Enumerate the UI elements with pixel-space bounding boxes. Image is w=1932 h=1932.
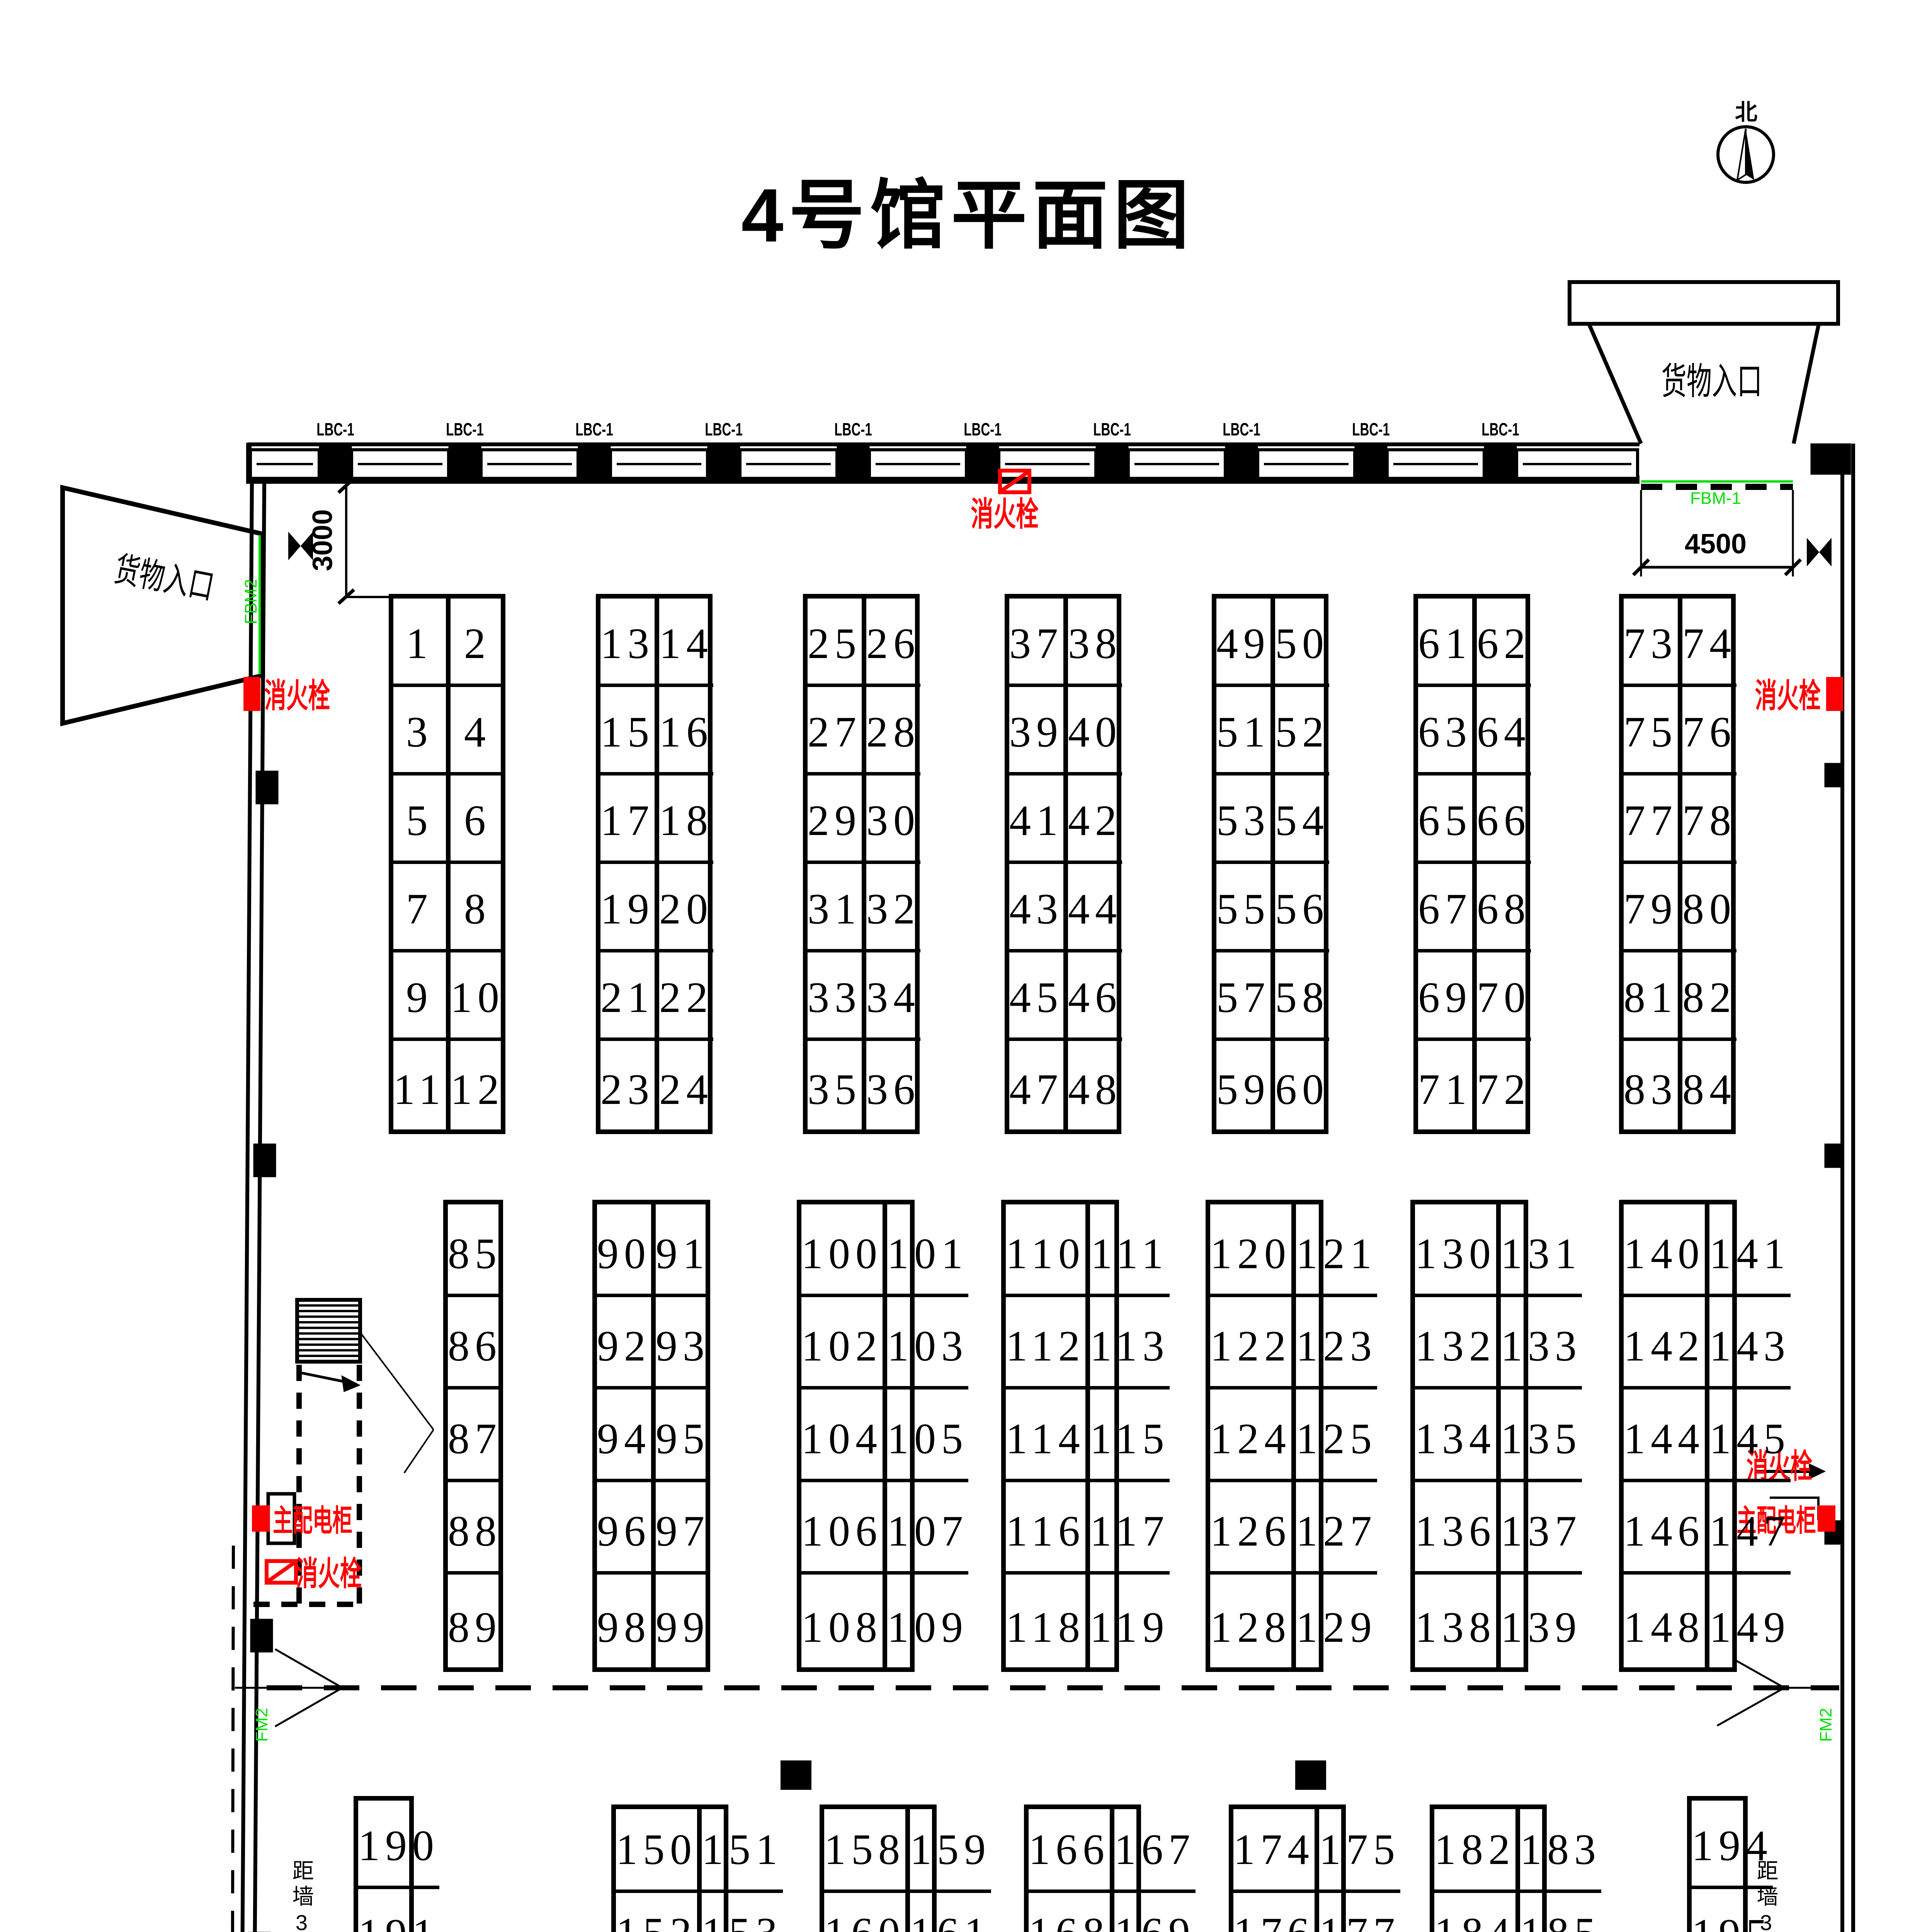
booth-number: 49 xyxy=(1216,619,1270,669)
booth-number: 52 xyxy=(1275,707,1329,757)
booth-number: 40 xyxy=(1068,707,1122,757)
booth-number: 135 xyxy=(1501,1414,1582,1464)
booth-number: 83 xyxy=(1624,1065,1678,1115)
booth-number: 71 xyxy=(1418,1065,1472,1115)
booth-cell: 66 xyxy=(1477,776,1531,864)
wall-column xyxy=(837,444,869,483)
booth-cell: 78 xyxy=(1682,776,1736,864)
booth-number: 73 xyxy=(1624,619,1678,669)
booth-cell: 138 xyxy=(1415,1575,1501,1667)
block-174-181: 174175176177178179180181 xyxy=(1229,1804,1346,1932)
booth-cell: 141 xyxy=(1709,1204,1791,1297)
block-166-173: 166167168169170171172173 xyxy=(1024,1804,1141,1932)
booth-cell: 60 xyxy=(1275,1041,1329,1129)
booth-cell: 153 xyxy=(702,1893,783,1932)
booth-number: 86 xyxy=(448,1321,502,1371)
booth-cell: 9 xyxy=(393,952,451,1041)
booth-number: 80 xyxy=(1682,884,1736,934)
booth-cell: 17 xyxy=(600,776,659,864)
fire-hydrant-label: 消火栓 xyxy=(1755,679,1821,713)
booth-number: 30 xyxy=(866,796,920,846)
booth-number: 167 xyxy=(1114,1825,1196,1875)
booth-number: 22 xyxy=(659,973,713,1023)
booth-number: 53 xyxy=(1216,796,1270,846)
top-wall-panel-label: LBC-1 xyxy=(957,419,1008,440)
booth-cell: 18 xyxy=(659,776,713,864)
booth-cell: 55 xyxy=(1216,864,1275,952)
booth-cell: 125 xyxy=(1296,1389,1377,1482)
booth-cell: 191 xyxy=(358,1889,439,1932)
booth-cell: 102 xyxy=(801,1297,887,1390)
booth-number: 110 xyxy=(1006,1229,1085,1279)
booth-cell: 185 xyxy=(1520,1893,1601,1932)
booth-cell: 67 xyxy=(1418,864,1477,952)
booth-cell: 160 xyxy=(824,1893,910,1932)
booth-cell: 63 xyxy=(1418,687,1477,776)
booth-cell: 92 xyxy=(597,1297,656,1390)
booth-cell: 175 xyxy=(1319,1809,1400,1893)
booth-cell: 26 xyxy=(866,599,920,687)
booth-cell: 41 xyxy=(1009,776,1068,864)
booth-number: 109 xyxy=(887,1603,968,1653)
booth-cell: 46 xyxy=(1068,952,1122,1041)
booth-number: 27 xyxy=(808,707,862,757)
booth-number: 184 xyxy=(1434,1908,1515,1932)
booth-number: 37 xyxy=(1009,619,1063,669)
booth-number: 55 xyxy=(1216,884,1270,934)
booth-cell: 47 xyxy=(1009,1041,1068,1129)
booth-number: 113 xyxy=(1090,1321,1170,1371)
booth-number: 114 xyxy=(1006,1414,1085,1464)
booth-cell: 32 xyxy=(866,864,920,952)
booth-cell: 29 xyxy=(808,776,866,864)
booth-cell: 158 xyxy=(824,1809,910,1893)
booth-cell: 120 xyxy=(1210,1204,1296,1297)
booth-number: 92 xyxy=(597,1321,651,1371)
booth-number: 128 xyxy=(1210,1603,1291,1653)
booth-cell: 87 xyxy=(448,1389,502,1482)
booth-cell: 21 xyxy=(600,952,659,1041)
block-13-24: 131415161718192021222324 xyxy=(596,594,713,1134)
booth-number: 101 xyxy=(887,1229,968,1279)
booth-number: 183 xyxy=(1520,1825,1601,1875)
booth-cell: 88 xyxy=(448,1482,502,1575)
booth-cell: 19 xyxy=(600,864,659,952)
booth-cell: 121 xyxy=(1296,1204,1377,1297)
booth-cell: 169 xyxy=(1114,1893,1196,1932)
booth-number: 134 xyxy=(1415,1414,1496,1464)
booth-cell: 115 xyxy=(1090,1389,1170,1482)
booth-number: 31 xyxy=(808,884,862,934)
booth-cell: 146 xyxy=(1624,1482,1709,1575)
booth-cell: 53 xyxy=(1216,776,1275,864)
booth-cell: 117 xyxy=(1090,1482,1170,1575)
booth-number: 149 xyxy=(1709,1603,1791,1653)
booth-number: 194 xyxy=(1692,1821,1773,1871)
booth-number: 28 xyxy=(866,707,920,757)
booth-number: 68 xyxy=(1477,884,1531,934)
booth-cell: 2 xyxy=(451,599,505,687)
booth-number: 142 xyxy=(1624,1321,1705,1371)
door-mark-fbm1: FBM-1 xyxy=(1662,490,1770,507)
booth-cell: 49 xyxy=(1216,599,1275,687)
booth-number: 81 xyxy=(1624,973,1678,1023)
booth-number: 65 xyxy=(1418,796,1472,846)
booth-number: 158 xyxy=(824,1825,905,1875)
booth-number: 102 xyxy=(801,1321,883,1371)
booth-cell: 40 xyxy=(1068,687,1122,776)
booth-cell: 65 xyxy=(1418,776,1477,864)
booth-number: 99 xyxy=(656,1603,710,1653)
booth-number: 6 xyxy=(464,796,491,846)
booth-number: 16 xyxy=(659,707,713,757)
booth-cell: 140 xyxy=(1624,1204,1709,1297)
booth-cell: 110 xyxy=(1006,1204,1090,1297)
booth-number: 91 xyxy=(656,1229,710,1279)
booth-cell: 15 xyxy=(600,687,659,776)
booth-cell: 133 xyxy=(1501,1297,1582,1390)
booth-number: 75 xyxy=(1624,707,1678,757)
booth-number: 72 xyxy=(1477,1065,1531,1115)
booth-number: 93 xyxy=(656,1321,710,1371)
booth-number: 61 xyxy=(1418,619,1472,669)
booth-number: 15 xyxy=(600,707,655,757)
booth-number: 174 xyxy=(1233,1825,1315,1875)
wall-column xyxy=(1225,444,1258,483)
booth-cell: 38 xyxy=(1068,599,1122,687)
fire-hydrant-label: 消火栓 xyxy=(957,498,1052,531)
booth-cell: 31 xyxy=(808,864,866,952)
booth-number: 130 xyxy=(1415,1229,1496,1279)
booth-cell: 86 xyxy=(448,1297,502,1390)
booth-number: 2 xyxy=(464,619,491,669)
booth-cell: 132 xyxy=(1415,1297,1501,1390)
booth-number: 97 xyxy=(656,1507,710,1556)
booth-cell: 167 xyxy=(1114,1809,1196,1893)
block-194-197: 194195196197 xyxy=(1687,1796,1748,1932)
floor-plan-page: 4号馆平面图 北 货物入口 货物入口 3000 4500 消火栓 消火栓 消火栓… xyxy=(0,0,1932,1932)
booth-number: 82 xyxy=(1682,973,1736,1023)
booth-number: 70 xyxy=(1477,973,1531,1023)
block-37-48: 373839404142434445464748 xyxy=(1005,594,1121,1134)
booth-cell: 74 xyxy=(1682,599,1736,687)
booth-number: 144 xyxy=(1624,1414,1705,1464)
booth-number: 123 xyxy=(1296,1321,1377,1371)
booth-number: 42 xyxy=(1068,796,1122,846)
wall-column xyxy=(1355,444,1387,483)
booth-number: 118 xyxy=(1006,1603,1085,1653)
booth-cell: 39 xyxy=(1009,687,1068,776)
booth-number: 33 xyxy=(808,973,862,1023)
booth-cell: 11 xyxy=(393,1041,451,1129)
booth-cell: 194 xyxy=(1692,1801,1773,1889)
top-wall-panel-label: LBC-1 xyxy=(569,419,619,440)
booth-cell: 6 xyxy=(451,776,505,864)
booth-number: 139 xyxy=(1501,1603,1582,1653)
booth-cell: 5 xyxy=(393,776,451,864)
booth-cell: 114 xyxy=(1006,1389,1090,1482)
booth-number: 126 xyxy=(1210,1507,1291,1556)
booth-number: 79 xyxy=(1624,884,1678,934)
booth-number: 60 xyxy=(1275,1065,1329,1115)
booth-cell: 142 xyxy=(1624,1297,1709,1390)
booth-cell: 34 xyxy=(866,952,920,1041)
booth-number: 36 xyxy=(866,1065,920,1115)
booth-cell: 91 xyxy=(656,1204,710,1297)
booth-cell: 149 xyxy=(1709,1575,1791,1667)
booth-cell: 97 xyxy=(656,1482,710,1575)
booth-number: 176 xyxy=(1233,1908,1315,1932)
booth-cell: 4 xyxy=(451,687,505,776)
booth-cell: 123 xyxy=(1296,1297,1377,1390)
booth-number: 191 xyxy=(358,1910,439,1932)
booth-cell: 134 xyxy=(1415,1389,1501,1482)
booth-cell: 182 xyxy=(1434,1809,1520,1893)
booth-cell: 119 xyxy=(1090,1575,1170,1667)
booth-cell: 176 xyxy=(1233,1893,1319,1932)
booth-number: 190 xyxy=(358,1821,439,1871)
block-182-189: 182183184185186187188189 xyxy=(1430,1804,1547,1932)
booth-cell: 131 xyxy=(1501,1204,1582,1297)
booth-number: 11 xyxy=(393,1065,446,1115)
stairs-icon xyxy=(297,1300,434,1473)
booth-number: 10 xyxy=(451,973,505,1023)
booth-number: 64 xyxy=(1477,707,1531,757)
booth-number: 62 xyxy=(1477,619,1531,669)
door-mark-fm2: FM2 xyxy=(1818,1686,1835,1764)
block-25-36: 252627282930313233343536 xyxy=(803,594,920,1134)
booth-number: 94 xyxy=(597,1414,651,1464)
booth-cell: 127 xyxy=(1296,1482,1377,1575)
hall-pillar xyxy=(1295,1760,1326,1790)
booth-number: 35 xyxy=(808,1065,862,1115)
booth-number: 117 xyxy=(1090,1507,1170,1556)
booth-number: 90 xyxy=(597,1229,651,1279)
booth-number: 182 xyxy=(1434,1825,1515,1875)
door-mark-fm2: FM2 xyxy=(253,1686,270,1764)
fire-hydrant-label: 消火栓 xyxy=(264,679,330,713)
booth-cell: 76 xyxy=(1682,687,1736,776)
booth-number: 137 xyxy=(1501,1507,1582,1556)
booth-cell: 81 xyxy=(1624,952,1682,1041)
booth-cell: 33 xyxy=(808,952,866,1041)
booth-number: 122 xyxy=(1210,1321,1291,1371)
booth-cell: 51 xyxy=(1216,687,1275,776)
booth-cell: 77 xyxy=(1624,776,1682,864)
booth-cell: 95 xyxy=(656,1389,710,1482)
booth-cell: 1 xyxy=(393,599,451,687)
main-distribution-cabinet-label: 主配电柜 xyxy=(273,1505,352,1536)
booth-number: 56 xyxy=(1275,884,1329,934)
booth-cell: 16 xyxy=(659,687,713,776)
booth-number: 125 xyxy=(1296,1414,1377,1464)
booth-number: 77 xyxy=(1624,796,1678,846)
booth-cell: 28 xyxy=(866,687,920,776)
cargo-entrance-right-label: 货物入口 xyxy=(1636,363,1788,400)
booth-number: 106 xyxy=(801,1507,883,1556)
booth-number: 115 xyxy=(1090,1414,1170,1464)
booth-number: 41 xyxy=(1009,796,1063,846)
booth-cell: 103 xyxy=(887,1297,968,1390)
booth-cell: 109 xyxy=(887,1575,968,1667)
booth-number: 50 xyxy=(1275,619,1329,669)
booth-cell: 96 xyxy=(597,1482,656,1575)
booth-number: 58 xyxy=(1275,973,1329,1023)
booth-number: 26 xyxy=(866,619,920,669)
booth-cell: 69 xyxy=(1418,952,1477,1041)
block-73-84: 737475767778798081828384 xyxy=(1619,594,1736,1134)
booth-number: 195 xyxy=(1692,1910,1773,1932)
wall-column xyxy=(966,444,999,483)
booth-cell: 80 xyxy=(1682,864,1736,952)
block-90-99: 90919293949596979899 xyxy=(592,1200,710,1672)
booth-cell: 166 xyxy=(1029,1809,1114,1893)
booth-number: 133 xyxy=(1501,1321,1582,1371)
booth-cell: 23 xyxy=(600,1041,659,1129)
booth-cell: 145 xyxy=(1709,1389,1791,1482)
booth-cell: 54 xyxy=(1275,776,1329,864)
booth-number: 51 xyxy=(1216,707,1270,757)
booth-cell: 147 xyxy=(1709,1482,1791,1575)
booth-cell: 151 xyxy=(702,1809,783,1893)
door-x-icon xyxy=(1807,538,1832,566)
top-wall-panel-label: LBC-1 xyxy=(1087,419,1137,440)
block-61-72: 616263646566676869707172 xyxy=(1413,594,1530,1134)
booth-number: 24 xyxy=(659,1065,713,1115)
booth-cell: 98 xyxy=(597,1575,656,1667)
block-120-129: 120121122123124125126127128129 xyxy=(1206,1200,1323,1672)
booth-number: 9 xyxy=(406,973,433,1023)
booth-number: 104 xyxy=(801,1414,883,1464)
wall-column xyxy=(578,444,611,483)
booth-cell: 101 xyxy=(887,1204,968,1297)
booth-number: 3 xyxy=(406,707,433,757)
booth-number: 168 xyxy=(1029,1908,1110,1932)
booth-cell: 128 xyxy=(1210,1575,1296,1667)
booth-number: 4 xyxy=(464,707,491,757)
booth-number: 12 xyxy=(451,1065,505,1115)
booth-number: 45 xyxy=(1009,973,1063,1023)
block-150-157: 150151152153154155156157 xyxy=(611,1804,728,1932)
booth-cell: 136 xyxy=(1415,1482,1501,1575)
top-wall-panel-label: LBC-1 xyxy=(1346,419,1396,440)
page-title: 4号馆平面图 xyxy=(657,178,1279,253)
booth-cell: 90 xyxy=(597,1204,656,1297)
hall-pillar xyxy=(781,1760,811,1790)
booth-number: 69 xyxy=(1418,973,1472,1023)
booth-cell: 174 xyxy=(1233,1809,1319,1893)
booth-number: 78 xyxy=(1682,796,1736,846)
dimension-3000: 3000 xyxy=(309,490,337,590)
booth-number: 67 xyxy=(1418,884,1472,934)
booth-cell: 50 xyxy=(1275,599,1329,687)
booth-cell: 152 xyxy=(616,1893,702,1932)
booth-number: 38 xyxy=(1068,619,1122,669)
booth-number: 166 xyxy=(1029,1825,1110,1875)
booth-cell: 3 xyxy=(393,687,451,776)
north-label: 北 xyxy=(1733,101,1760,124)
booth-cell: 14 xyxy=(659,599,713,687)
booth-cell: 148 xyxy=(1624,1575,1709,1667)
top-wall-panel-label: LBC-1 xyxy=(1475,419,1526,440)
booth-cell: 177 xyxy=(1319,1893,1400,1932)
booth-cell: 144 xyxy=(1624,1389,1709,1482)
booth-cell: 56 xyxy=(1275,864,1329,952)
booth-number: 14 xyxy=(659,619,713,669)
booth-cell: 22 xyxy=(659,952,713,1041)
booth-number: 119 xyxy=(1090,1603,1170,1653)
booth-cell: 135 xyxy=(1501,1389,1582,1482)
booth-cell: 44 xyxy=(1068,864,1122,952)
booth-cell: 184 xyxy=(1434,1893,1520,1932)
block-190-193: 190191192193 xyxy=(354,1796,414,1932)
booth-number: 21 xyxy=(600,973,655,1023)
block-158-165: 158159160161162163164165 xyxy=(820,1804,937,1932)
booth-cell: 58 xyxy=(1275,952,1329,1041)
block-1-12: 123456789101112 xyxy=(389,594,505,1134)
booth-cell: 195 xyxy=(1692,1889,1773,1932)
booth-number: 148 xyxy=(1624,1603,1705,1653)
booth-cell: 161 xyxy=(910,1893,991,1932)
booth-cell: 61 xyxy=(1418,599,1477,687)
booth-number: 177 xyxy=(1319,1908,1400,1932)
booth-number: 147 xyxy=(1709,1507,1791,1556)
booth-number: 87 xyxy=(448,1414,502,1464)
booth-number: 89 xyxy=(448,1603,502,1653)
booth-cell: 139 xyxy=(1501,1575,1582,1667)
booth-cell: 75 xyxy=(1624,687,1682,776)
booth-number: 29 xyxy=(808,796,862,846)
wall-column xyxy=(1484,444,1517,483)
block-110-119: 110111112113114115116117118119 xyxy=(1001,1200,1119,1672)
booth-cell: 106 xyxy=(801,1482,887,1575)
booth-number: 44 xyxy=(1068,884,1122,934)
block-49-60: 495051525354555657585960 xyxy=(1212,594,1328,1134)
booth-cell: 108 xyxy=(801,1575,887,1667)
booth-cell: 20 xyxy=(659,864,713,952)
booth-number: 150 xyxy=(616,1825,697,1875)
booth-cell: 105 xyxy=(887,1389,968,1482)
booth-cell: 89 xyxy=(448,1575,502,1667)
booth-number: 63 xyxy=(1418,707,1472,757)
booth-cell: 168 xyxy=(1029,1893,1114,1932)
booth-cell: 99 xyxy=(656,1575,710,1667)
booth-number: 105 xyxy=(887,1414,968,1464)
booth-number: 141 xyxy=(1709,1229,1791,1279)
booth-cell: 57 xyxy=(1216,952,1275,1041)
booth-cell: 94 xyxy=(597,1389,656,1482)
booth-cell: 113 xyxy=(1090,1297,1170,1390)
booth-cell: 79 xyxy=(1624,864,1682,952)
booth-cell: 183 xyxy=(1520,1809,1601,1893)
booth-cell: 13 xyxy=(600,599,659,687)
booth-cell: 122 xyxy=(1210,1297,1296,1390)
booth-number: 48 xyxy=(1068,1065,1122,1115)
booth-number: 7 xyxy=(406,884,433,934)
booth-cell: 159 xyxy=(910,1809,991,1893)
booth-cell: 85 xyxy=(448,1204,502,1297)
booth-cell: 116 xyxy=(1006,1482,1090,1575)
booth-cell: 70 xyxy=(1477,952,1531,1041)
booth-number: 146 xyxy=(1624,1507,1705,1556)
booth-cell: 73 xyxy=(1624,599,1682,687)
booth-cell: 59 xyxy=(1216,1041,1275,1129)
booth-number: 116 xyxy=(1006,1507,1085,1556)
booth-number: 98 xyxy=(597,1603,651,1653)
booth-cell: 68 xyxy=(1477,864,1531,952)
booth-number: 145 xyxy=(1709,1414,1791,1464)
booth-cell: 83 xyxy=(1624,1041,1682,1129)
